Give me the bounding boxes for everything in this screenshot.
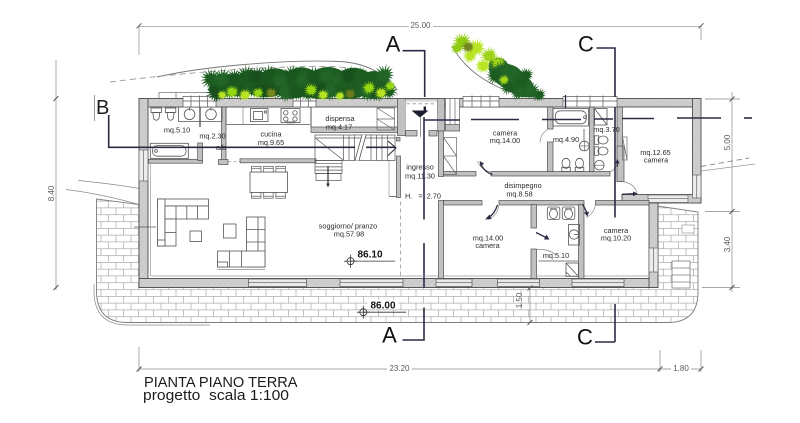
svg-text:1.80: 1.80 bbox=[673, 364, 689, 373]
svg-text:mq.2.30: mq.2.30 bbox=[199, 132, 225, 141]
svg-text:3.40: 3.40 bbox=[723, 236, 732, 252]
svg-text:progetto scala 1:100: progetto scala 1:100 bbox=[143, 388, 289, 404]
svg-text:ingresso: ingresso bbox=[406, 163, 434, 172]
svg-text:C: C bbox=[577, 325, 593, 350]
svg-text:camera: camera bbox=[475, 241, 500, 250]
svg-text:mq.5.10: mq.5.10 bbox=[164, 126, 190, 135]
svg-text:mq.5.10: mq.5.10 bbox=[543, 251, 569, 260]
svg-text:camera: camera bbox=[644, 156, 669, 165]
svg-text:mq.10.20: mq.10.20 bbox=[601, 234, 631, 243]
svg-text:mq.9.65: mq.9.65 bbox=[258, 138, 284, 147]
svg-text:86.00: 86.00 bbox=[371, 301, 396, 312]
svg-text:1.50: 1.50 bbox=[515, 292, 524, 308]
svg-text:a/b: a/b bbox=[216, 143, 226, 152]
svg-text:H. = 2.70: H. = 2.70 bbox=[405, 192, 441, 201]
svg-text:mq.4.90: mq.4.90 bbox=[553, 135, 579, 144]
svg-text:B: B bbox=[96, 97, 109, 119]
svg-text:mq.11.30: mq.11.30 bbox=[405, 172, 435, 181]
svg-text:mq.14.00: mq.14.00 bbox=[490, 136, 520, 145]
svg-text:mq.8.58: mq.8.58 bbox=[506, 190, 532, 199]
svg-text:mq.4.17: mq.4.17 bbox=[326, 123, 352, 132]
svg-text:mq.3.70: mq.3.70 bbox=[593, 125, 619, 134]
svg-text:25.00: 25.00 bbox=[410, 21, 431, 30]
svg-text:5.00: 5.00 bbox=[723, 134, 732, 150]
svg-text:23.20: 23.20 bbox=[389, 364, 410, 373]
svg-text:mq.57.98: mq.57.98 bbox=[334, 230, 364, 239]
svg-text:A: A bbox=[382, 323, 397, 348]
svg-text:A: A bbox=[386, 32, 401, 57]
svg-text:C: C bbox=[578, 32, 594, 57]
svg-text:8.40: 8.40 bbox=[47, 185, 56, 201]
svg-text:86.10: 86.10 bbox=[358, 250, 383, 261]
